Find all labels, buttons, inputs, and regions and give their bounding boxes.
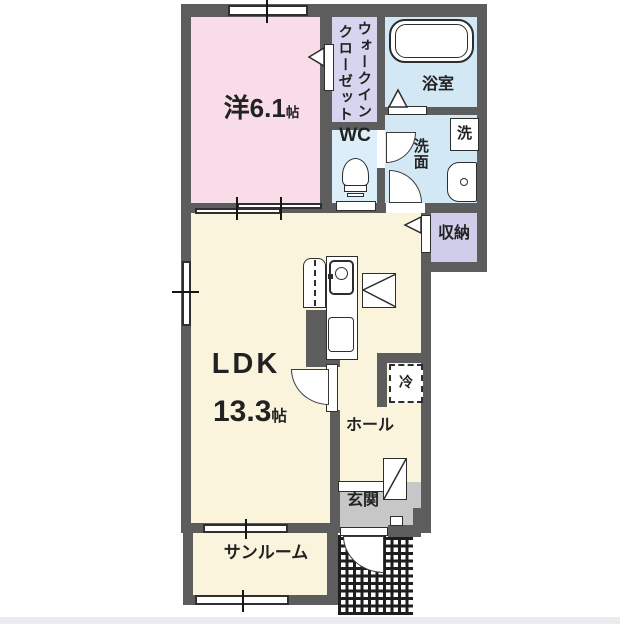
- toilet-tank: [344, 185, 367, 192]
- label-washing-machine: 洗: [450, 126, 479, 142]
- window-tick: [266, 0, 268, 23]
- sliding-door-bedroom-b: [195, 208, 281, 214]
- window-tick: [242, 590, 244, 612]
- label-bathroom: 浴室: [407, 77, 469, 94]
- window-ldk-left: [182, 261, 191, 326]
- label-refrigerator: 冷: [389, 375, 423, 390]
- window-bedroom-top: [228, 5, 308, 16]
- door-tick: [280, 197, 282, 220]
- toilet-base: [347, 193, 364, 197]
- kitchen-sink-knob: [328, 274, 333, 279]
- wall-front-door-right: [388, 525, 421, 537]
- door-tick: [236, 197, 238, 220]
- wall-fridge-nook-left: [377, 353, 387, 407]
- entrance-step: [338, 481, 388, 492]
- bathtub-inner: [395, 24, 468, 58]
- bath-sliding-door: [388, 106, 427, 115]
- label-storage: 収納: [431, 226, 477, 243]
- hanging-cupboard: [362, 273, 396, 308]
- toilet-bowl: [342, 158, 369, 186]
- shoe-cabinet: [383, 458, 407, 500]
- label-bedroom: 洋6.1帖: [191, 95, 332, 122]
- wc-bottom-door: [336, 201, 376, 211]
- kitchen-cabinet-dashline: [314, 260, 316, 306]
- wall-sunroom-right: [327, 523, 338, 605]
- window-tick: [245, 519, 247, 539]
- label-washroom: 洗面: [412, 138, 428, 170]
- image-bottom-strip: [0, 617, 620, 624]
- wc-door-opening: [377, 130, 385, 168]
- sink-drain: [460, 178, 468, 186]
- kitchen-faucet: [335, 267, 348, 280]
- label-ldk-size: 13.3帖: [190, 396, 310, 428]
- entrance-side-panel: [390, 516, 403, 526]
- kitchen-stove: [328, 317, 354, 352]
- floor-plan: 洋6.1帖 ウォークイン クローゼット 浴室 WC 洗面 洗 収納 LDK 13…: [0, 0, 620, 624]
- wall-top: [181, 4, 487, 17]
- label-ldk: LDK: [203, 349, 289, 379]
- label-walk-in-closet-line1: ウォークイン: [355, 21, 370, 120]
- storage-door-leaf: [421, 215, 431, 253]
- washroom-door-opening: [386, 203, 425, 213]
- front-door-bar: [340, 527, 388, 536]
- label-walk-in-closet-line2: クローゼット: [336, 24, 351, 123]
- wall-mid-vertical: [377, 15, 385, 213]
- label-sunroom: サンルーム: [211, 544, 321, 562]
- label-wc: WC: [337, 126, 373, 146]
- label-hall: ホール: [338, 418, 402, 435]
- label-entrance: 玄関: [340, 493, 386, 510]
- closet-door-leaf: [324, 44, 334, 91]
- window-tick: [172, 291, 199, 293]
